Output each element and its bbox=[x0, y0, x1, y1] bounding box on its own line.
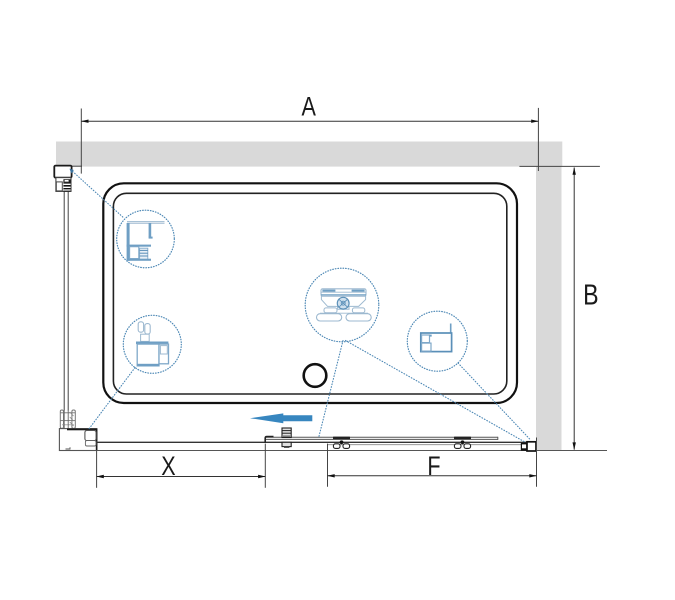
svg-text:B: B bbox=[583, 278, 598, 311]
svg-text:A: A bbox=[301, 93, 316, 123]
svg-text:X: X bbox=[161, 452, 175, 482]
svg-text:F: F bbox=[427, 452, 440, 482]
